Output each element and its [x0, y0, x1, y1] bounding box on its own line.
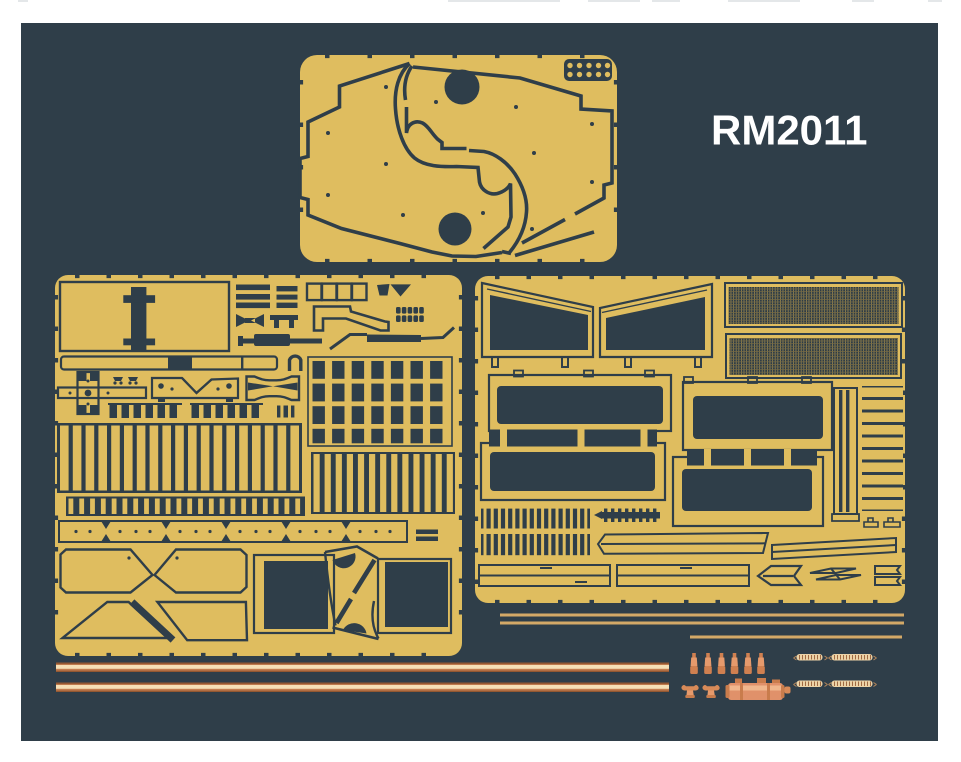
svg-text:RM2011: RM2011	[711, 107, 867, 154]
